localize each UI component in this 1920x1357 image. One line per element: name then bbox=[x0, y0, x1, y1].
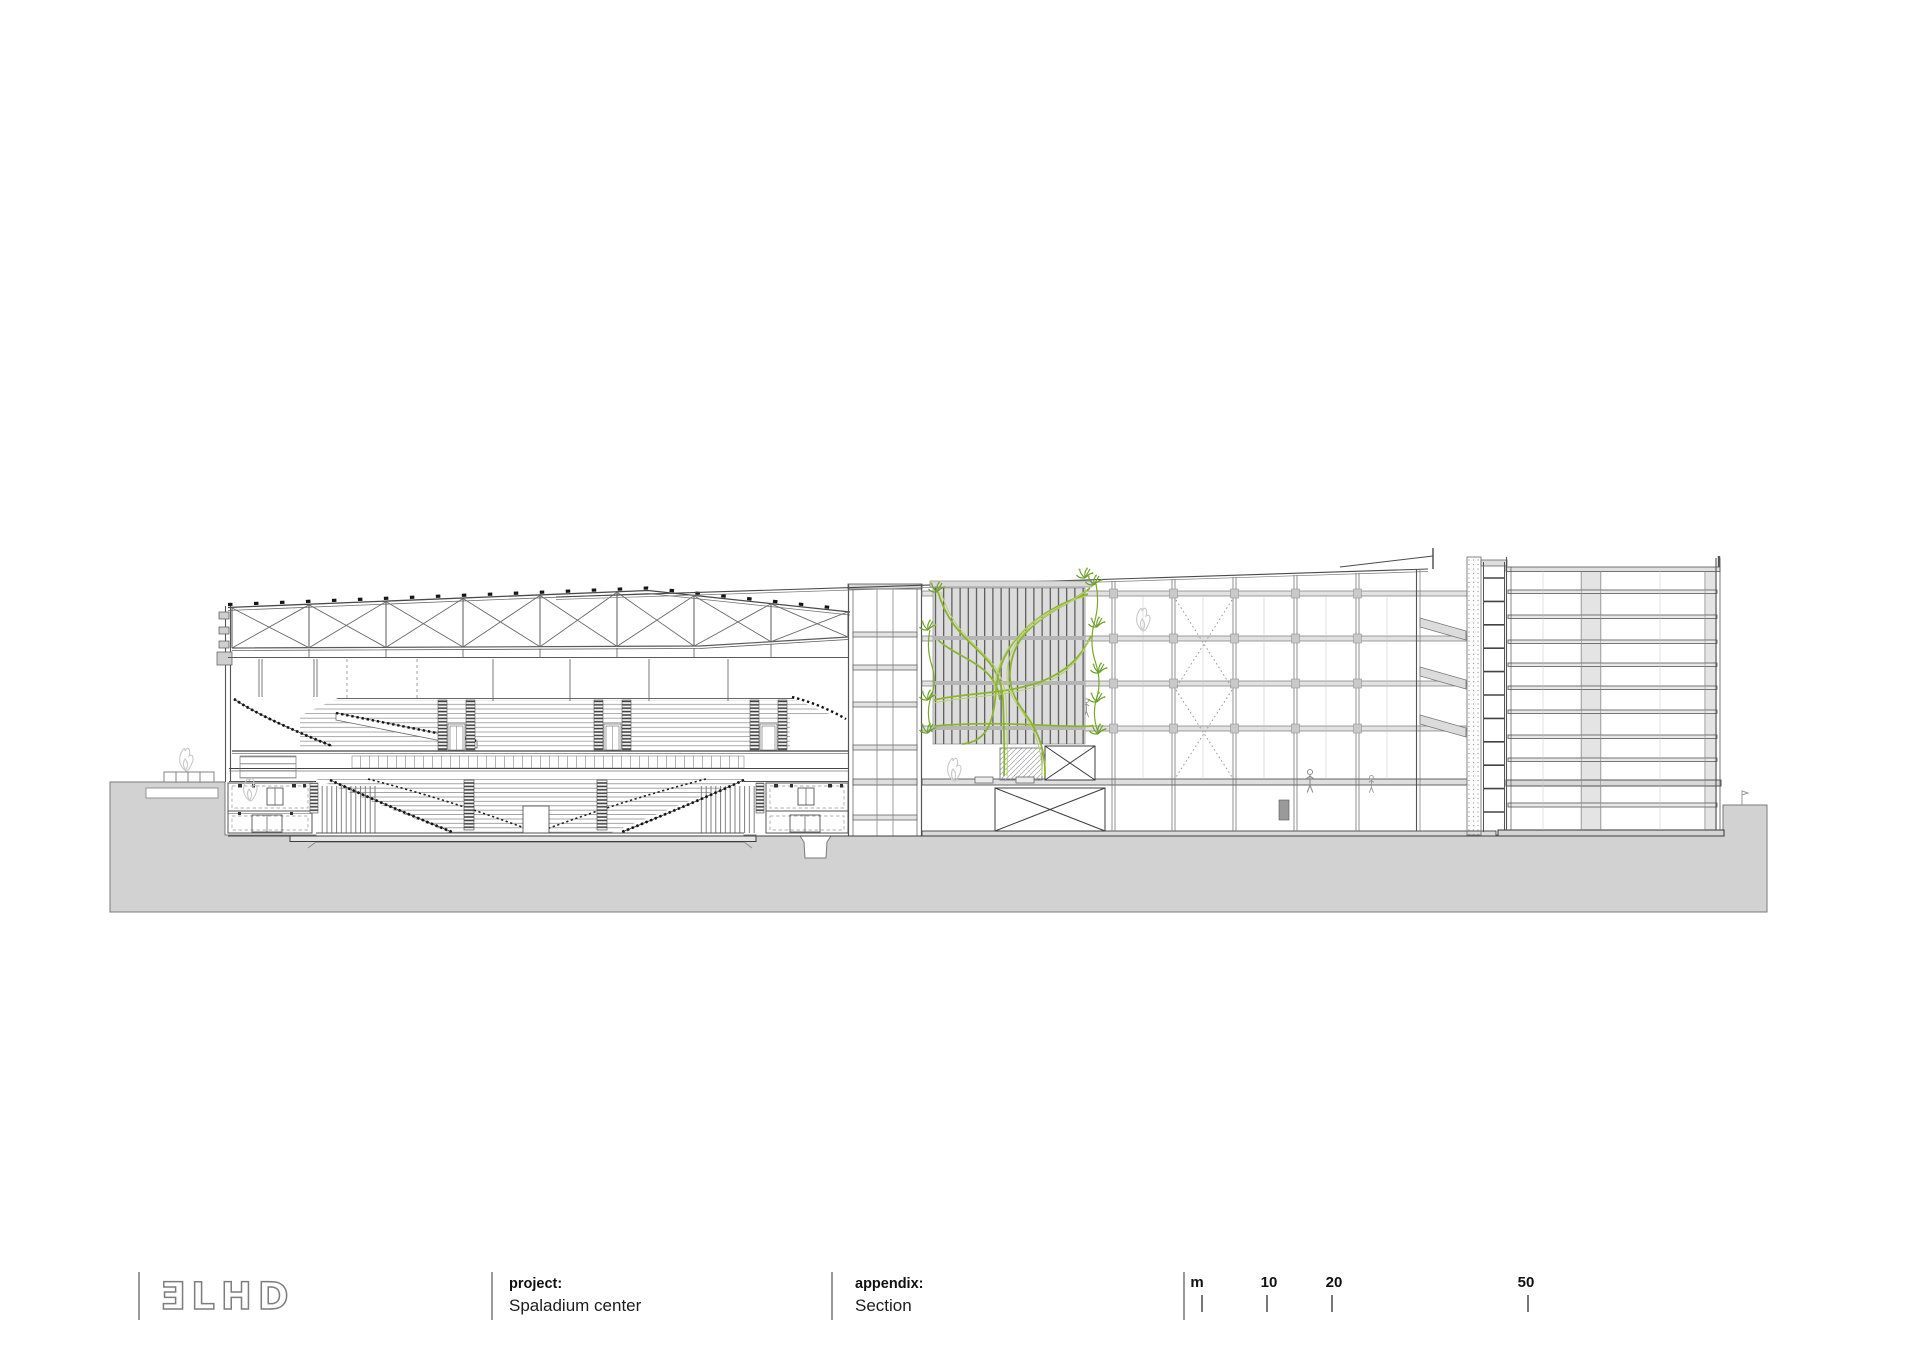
scale-mark-50: 50 bbox=[1518, 1274, 1535, 1291]
braced-boxes bbox=[995, 746, 1105, 831]
logo-text: ƎLHD bbox=[160, 1276, 295, 1318]
central-core bbox=[848, 584, 922, 836]
service-door bbox=[1279, 800, 1289, 820]
scale-mark-20: 20 bbox=[1326, 1274, 1343, 1291]
arena-left-wall bbox=[217, 606, 232, 782]
fire-symbol bbox=[180, 748, 193, 771]
entry-annex bbox=[164, 772, 214, 782]
aisle-stair bbox=[464, 780, 474, 830]
titleblock-divider bbox=[138, 1272, 140, 1320]
railing-posts bbox=[318, 786, 376, 833]
glazed-door bbox=[1000, 748, 1042, 780]
vomitory-tunnel bbox=[523, 806, 549, 833]
stair-ladder bbox=[1481, 560, 1507, 832]
appendix-field: appendix: Section bbox=[855, 1274, 923, 1317]
fire-symbol bbox=[948, 758, 961, 781]
project-value: Spaladium center bbox=[509, 1295, 641, 1317]
core-slabs bbox=[853, 632, 917, 820]
bowl-foundation-slab bbox=[290, 836, 756, 842]
arena-section bbox=[217, 588, 850, 848]
tower-base-slab bbox=[1498, 830, 1724, 836]
titleblock-divider bbox=[831, 1272, 833, 1320]
basement-rooms-left bbox=[228, 783, 318, 833]
appendix-label: appendix: bbox=[855, 1274, 923, 1295]
upper-tier bbox=[232, 697, 848, 754]
titleblock-divider bbox=[1183, 1272, 1185, 1320]
dotted-bracing bbox=[1176, 600, 1232, 777]
tower-edge-column bbox=[1704, 571, 1717, 830]
arena-roofline bbox=[228, 588, 850, 615]
drawing-sheet: ƎLHD project: Spaladium center appendix:… bbox=[0, 0, 1920, 1357]
arena-roof-truss bbox=[232, 592, 848, 650]
office-tower bbox=[1498, 556, 1724, 836]
section-drawing bbox=[0, 0, 1920, 1357]
scale-tick bbox=[1527, 1295, 1529, 1312]
scale-tick bbox=[1201, 1295, 1203, 1312]
tower-floor-slabs bbox=[1498, 567, 1724, 836]
titleblock-divider bbox=[491, 1272, 493, 1320]
project-label: project: bbox=[509, 1274, 641, 1295]
window-well bbox=[146, 788, 218, 798]
scale-tick bbox=[1331, 1295, 1333, 1312]
fire-symbol bbox=[1137, 608, 1150, 631]
stair-shaft bbox=[310, 783, 318, 813]
tower-core-column bbox=[1580, 571, 1602, 830]
tower-walls bbox=[1507, 556, 1721, 830]
service-shaft bbox=[1467, 557, 1481, 835]
arena-ceiling bbox=[228, 644, 848, 702]
scale-mark-10: 10 bbox=[1261, 1274, 1278, 1291]
basement-rooms-right bbox=[756, 783, 848, 833]
suite-band bbox=[229, 756, 848, 782]
transfer-slab bbox=[1506, 780, 1721, 786]
aisle-stair bbox=[597, 780, 607, 830]
lower-bowl bbox=[290, 779, 758, 848]
logo: ƎLHD bbox=[158, 1276, 348, 1323]
appendix-value: Section bbox=[855, 1295, 923, 1317]
scale-tick bbox=[1266, 1295, 1268, 1312]
railing-posts bbox=[700, 786, 758, 833]
garden-cables bbox=[933, 588, 1085, 744]
project-field: project: Spaladium center bbox=[509, 1274, 641, 1317]
stair-shaft bbox=[756, 783, 764, 813]
scale-unit: m bbox=[1190, 1274, 1203, 1291]
terrain-flag-marker bbox=[1742, 791, 1748, 805]
